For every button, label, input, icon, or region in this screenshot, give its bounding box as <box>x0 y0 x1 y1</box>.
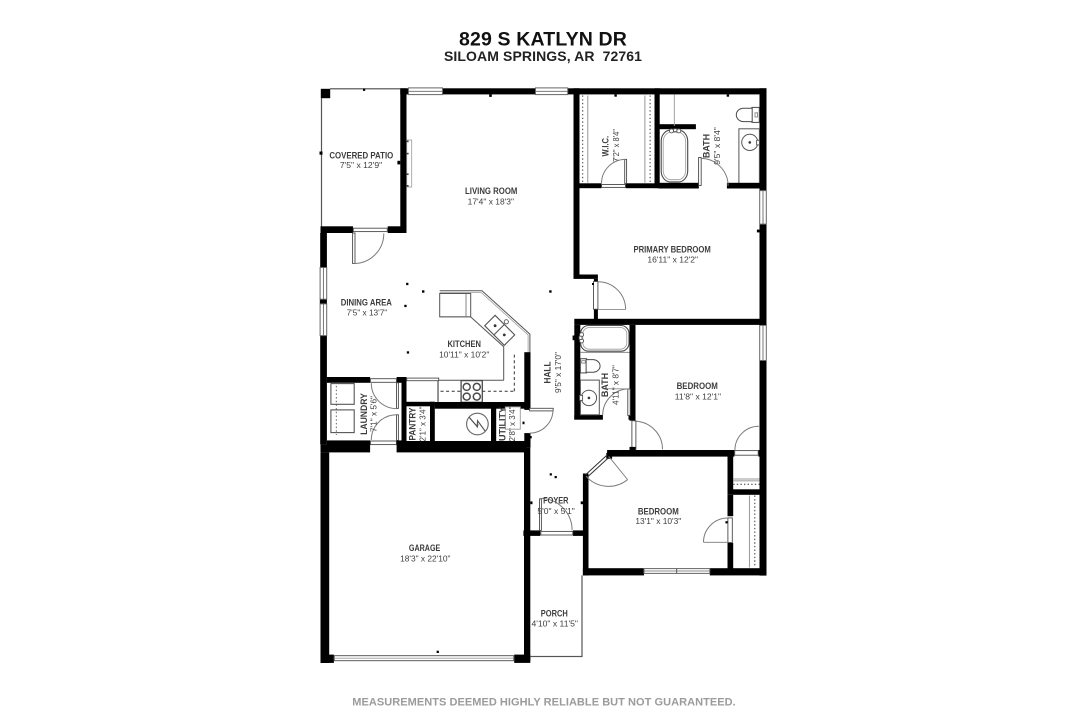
svg-text:4'11" x 8'7": 4'11" x 8'7" <box>610 365 620 405</box>
svg-text:10'11" x 10'2": 10'11" x 10'2" <box>439 349 489 359</box>
svg-text:9'5" x 17'0": 9'5" x 17'0" <box>553 352 563 393</box>
svg-text:BATH: BATH <box>702 134 712 158</box>
svg-text:7'2" x 8'4": 7'2" x 8'4" <box>612 129 622 162</box>
svg-text:PANTRY: PANTRY <box>407 407 417 440</box>
svg-text:7'5" x 12'9": 7'5" x 12'9" <box>340 160 382 170</box>
svg-text:7'1" x 5'6": 7'1" x 5'6" <box>368 396 378 432</box>
svg-text:KITCHEN: KITCHEN <box>447 338 481 349</box>
svg-text:FOYER: FOYER <box>543 496 568 506</box>
svg-text:7'5" x 13'7": 7'5" x 13'7" <box>347 307 388 317</box>
svg-text:MEASUREMENTS DEEMED HIGHLY REL: MEASUREMENTS DEEMED HIGHLY RELIABLE BUT … <box>352 697 736 709</box>
svg-text:2'1" x 3'4": 2'1" x 3'4" <box>417 406 427 441</box>
svg-text:11'8" x 12'1": 11'8" x 12'1" <box>675 391 721 401</box>
svg-text:PRIMARY BEDROOM: PRIMARY BEDROOM <box>633 244 710 255</box>
svg-text:W.I.C.: W.I.C. <box>600 136 611 157</box>
svg-text:HALL: HALL <box>542 362 552 384</box>
svg-text:PORCH: PORCH <box>541 609 568 619</box>
svg-text:4'10" x 11'5": 4'10" x 11'5" <box>531 618 578 628</box>
svg-text:16'11" x 12'2": 16'11" x 12'2" <box>647 254 698 264</box>
svg-text:UTILITY: UTILITY <box>497 407 507 441</box>
svg-text:13'1" x 10'3": 13'1" x 10'3" <box>635 516 681 526</box>
svg-text:DINING AREA: DINING AREA <box>341 297 392 308</box>
svg-text:2'8" x 3'4": 2'8" x 3'4" <box>507 406 517 441</box>
svg-text:GARAGE: GARAGE <box>409 543 441 553</box>
svg-text:BATH: BATH <box>600 373 610 397</box>
svg-text:SILOAM SPRINGS, AR 72761: SILOAM SPRINGS, AR 72761 <box>444 48 642 64</box>
svg-text:18'3" x 22'10": 18'3" x 22'10" <box>400 553 450 563</box>
svg-text:17'4" x 18'3": 17'4" x 18'3" <box>468 196 514 206</box>
svg-text:LIVING ROOM: LIVING ROOM <box>465 185 517 196</box>
svg-text:9'5" x 8'4": 9'5" x 8'4" <box>712 127 722 165</box>
svg-text:COVERED PATIO: COVERED PATIO <box>329 150 393 161</box>
svg-text:5'0" x 5'1": 5'0" x 5'1" <box>537 506 574 516</box>
svg-text:BEDROOM: BEDROOM <box>677 380 718 391</box>
